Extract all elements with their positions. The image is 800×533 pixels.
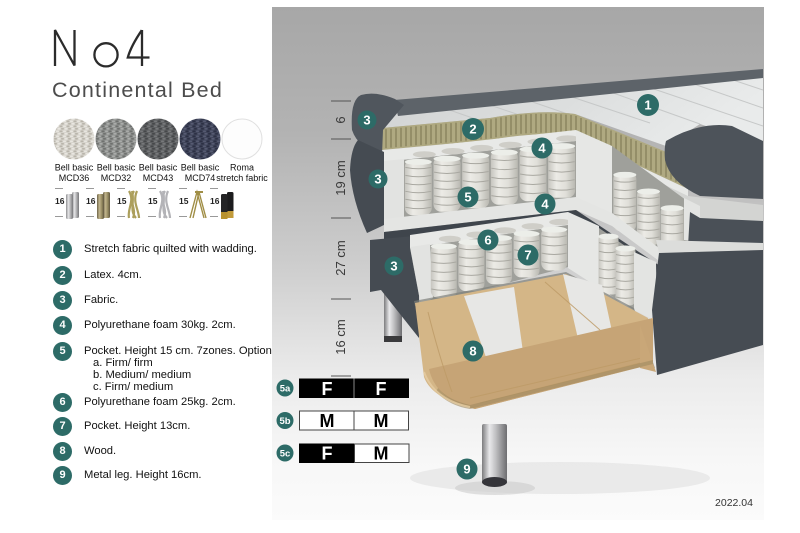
svg-text:3: 3 xyxy=(363,113,370,128)
svg-text:5c: 5c xyxy=(280,449,291,460)
svg-text:27 cm: 27 cm xyxy=(333,240,348,275)
svg-text:M: M xyxy=(374,411,389,431)
svg-text:4: 4 xyxy=(538,141,546,156)
svg-text:M: M xyxy=(374,444,389,464)
svg-text:5: 5 xyxy=(464,190,471,205)
svg-text:1: 1 xyxy=(644,98,651,113)
svg-text:16 cm: 16 cm xyxy=(333,319,348,354)
svg-text:5a: 5a xyxy=(280,384,291,395)
svg-text:M: M xyxy=(320,411,335,431)
svg-text:7: 7 xyxy=(524,248,531,263)
svg-text:5b: 5b xyxy=(279,416,290,427)
svg-text:F: F xyxy=(322,379,333,399)
svg-text:9: 9 xyxy=(463,462,470,477)
svg-text:3: 3 xyxy=(390,259,397,274)
svg-text:8: 8 xyxy=(469,344,476,359)
svg-text:F: F xyxy=(376,379,387,399)
svg-text:2022.04: 2022.04 xyxy=(715,497,753,509)
svg-text:19 cm: 19 cm xyxy=(333,160,348,195)
svg-text:6: 6 xyxy=(333,116,348,123)
svg-text:4: 4 xyxy=(541,197,549,212)
svg-text:2: 2 xyxy=(469,122,476,137)
svg-text:6: 6 xyxy=(484,233,491,248)
svg-text:F: F xyxy=(322,444,333,464)
svg-text:3: 3 xyxy=(374,172,381,187)
